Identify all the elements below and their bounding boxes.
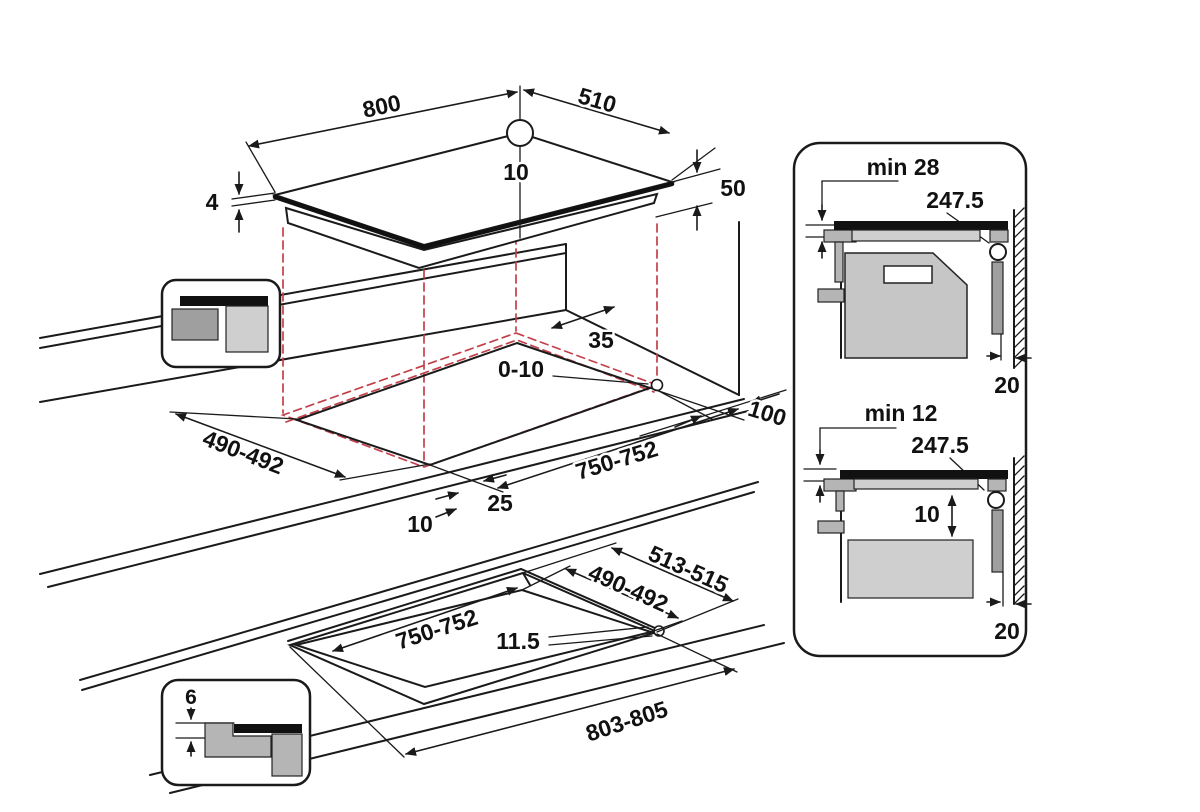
wall-gap-drawer-label: 20: [994, 618, 1020, 644]
dim-rear-gap: 0-10: [498, 356, 544, 382]
dim-side-offset: 10: [407, 511, 433, 537]
standard-mount-inset: [162, 280, 280, 367]
inset-hob-body-block: [226, 306, 268, 352]
dim-hole-offset: 10: [503, 159, 529, 185]
cable-length-oven-label: 247.5: [926, 187, 984, 213]
cable-duct-2: [992, 510, 1003, 572]
dim-glass-thickness: 4: [206, 189, 219, 215]
inset-flush-hob-bar: [234, 724, 302, 733]
cable-length-drawer-label: 247.5: [911, 432, 969, 458]
dim-flush-ledge: 11.5: [496, 628, 540, 654]
dim-flush-outer-width: 803-805: [583, 696, 672, 747]
hob-section-bar-2: [840, 470, 1008, 479]
installation-diagram: 490-492 750-752 35 0-10 100 25 10: [0, 0, 1200, 812]
hole-marker: [507, 120, 533, 146]
wall-gap-oven-label: 20: [994, 372, 1020, 398]
dim-front-offset: 25: [487, 490, 513, 516]
hob-top-view: 10 800 510 50 4: [206, 82, 746, 268]
dim-hob-width: 800: [360, 89, 403, 122]
drawer-gap-label: 10: [914, 501, 940, 527]
dim-cutout-width: 750-752: [573, 435, 661, 485]
drawer-body: [848, 540, 973, 598]
worktop-cutout-view: 490-492 750-752 35 0-10 100 25 10: [40, 222, 789, 587]
inset-flush-hob-body: [272, 734, 302, 776]
inset-hob-bar: [180, 296, 268, 306]
cable-circle-2: [988, 492, 1004, 508]
clearance-panel: min 28 247.5 20: [794, 143, 1031, 656]
dim-cutout-depth: 490-492: [199, 425, 287, 480]
inset-cabinet-block: [172, 309, 218, 340]
dim-hob-depth: 510: [575, 82, 619, 118]
cable-circle: [990, 244, 1006, 260]
min-clearance-oven-label: min 28: [867, 154, 940, 180]
worktop-outline: [40, 222, 748, 587]
oven-vent-slot: [884, 266, 932, 283]
flush-mount-inset: 6: [162, 680, 310, 785]
clamp-block: [824, 230, 856, 242]
min-clearance-drawer-label: min 12: [865, 400, 938, 426]
dim-back-clearance: 35: [588, 327, 614, 353]
hob-section-bar: [834, 221, 1008, 230]
dim-right-clearance: 100: [745, 395, 789, 431]
cable-duct: [992, 262, 1003, 334]
dim-step-depth: 6: [185, 686, 197, 709]
dim-hob-height: 50: [720, 175, 746, 201]
